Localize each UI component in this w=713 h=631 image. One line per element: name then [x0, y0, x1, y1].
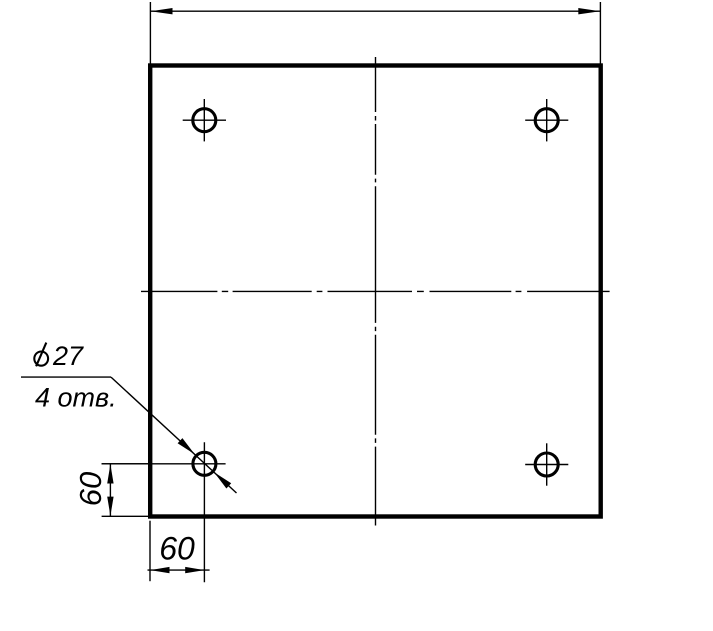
- svg-text:4 отв.: 4 отв.: [35, 383, 117, 413]
- svg-text:60: 60: [159, 531, 195, 567]
- svg-text:60: 60: [73, 472, 108, 506]
- svg-text:27: 27: [52, 341, 84, 371]
